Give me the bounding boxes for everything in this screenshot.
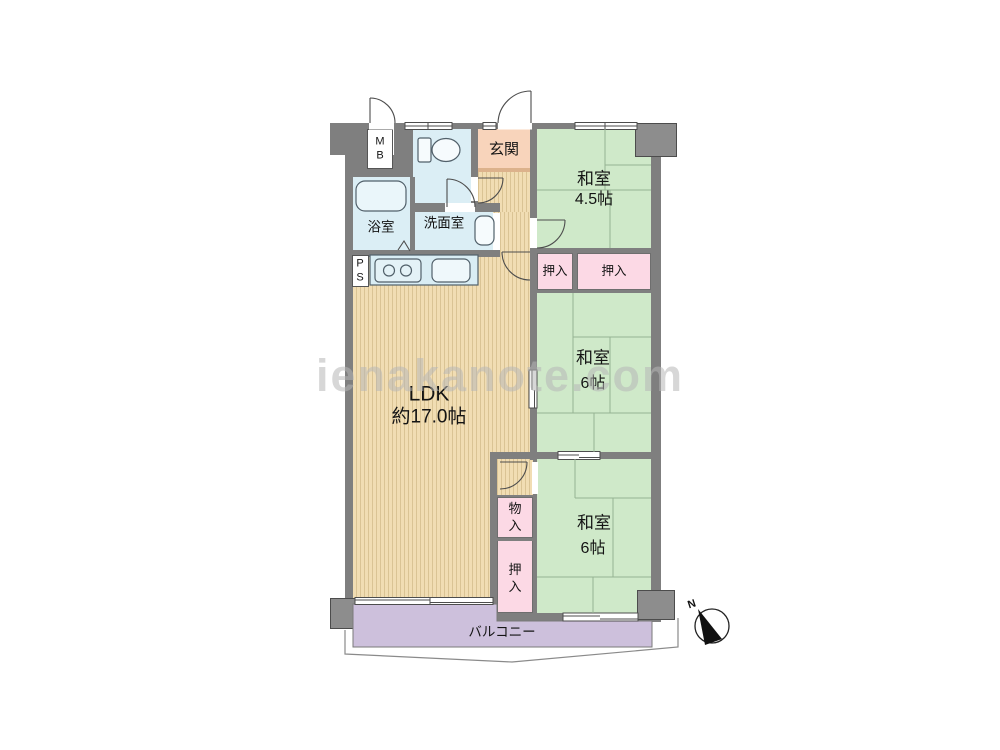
pipe-shaft-label: PS	[354, 257, 366, 286]
wall	[530, 248, 661, 253]
wall	[497, 495, 533, 497]
room-japanese-bottom-size: 6帖	[581, 540, 606, 558]
floorplan-canvas: N 玄関 和室 4.5帖 押入 押入 和室 6帖 和室 6帖 LDK 約17.0…	[0, 0, 1000, 750]
wall	[533, 459, 537, 613]
wall	[471, 200, 478, 212]
closet-top-left-label: 押入	[542, 265, 567, 279]
room-bath-label: 浴室	[368, 221, 395, 236]
hallway-nook-floor	[497, 459, 533, 495]
wall	[530, 123, 537, 460]
room-japanese-bottom-label: 和室	[577, 515, 611, 534]
closet-bottom-label: 押入	[507, 562, 523, 596]
wall	[410, 177, 415, 252]
pillar	[330, 598, 367, 629]
room-ldk-size: 約17.0帖	[392, 408, 467, 429]
wall	[471, 123, 478, 178]
pillar	[635, 123, 677, 157]
compass-n-label: N	[686, 597, 697, 611]
wall	[497, 538, 533, 541]
room-entrance-label: 玄関	[489, 142, 519, 159]
closet-top-right-label: 押入	[601, 265, 626, 279]
wall	[490, 459, 497, 614]
pillar	[637, 590, 675, 620]
wall	[475, 203, 500, 212]
wall	[573, 253, 577, 290]
hallway-floor-lower	[500, 212, 530, 257]
room-washroom-label: 洗面室	[424, 217, 465, 232]
wall	[490, 452, 651, 459]
watermark: ienakanote.com	[0, 350, 1000, 402]
wall	[537, 290, 651, 293]
wall	[345, 598, 497, 604]
compass-icon: N	[686, 597, 729, 645]
wall	[413, 203, 445, 212]
room-bath-floor	[352, 177, 410, 252]
room-toilet-floor	[413, 129, 471, 205]
wall	[490, 613, 661, 621]
balcony-label: バルコニー	[468, 626, 535, 641]
room-japanese-top-size: 4.5帖	[575, 191, 613, 209]
room-japanese-bottom-floor	[537, 459, 651, 613]
room-ldk-floor-lower	[352, 452, 490, 598]
room-japanese-top-label: 和室	[577, 171, 611, 190]
storage-small-label: 物入	[507, 501, 523, 535]
meter-box-label: MB	[374, 135, 387, 164]
